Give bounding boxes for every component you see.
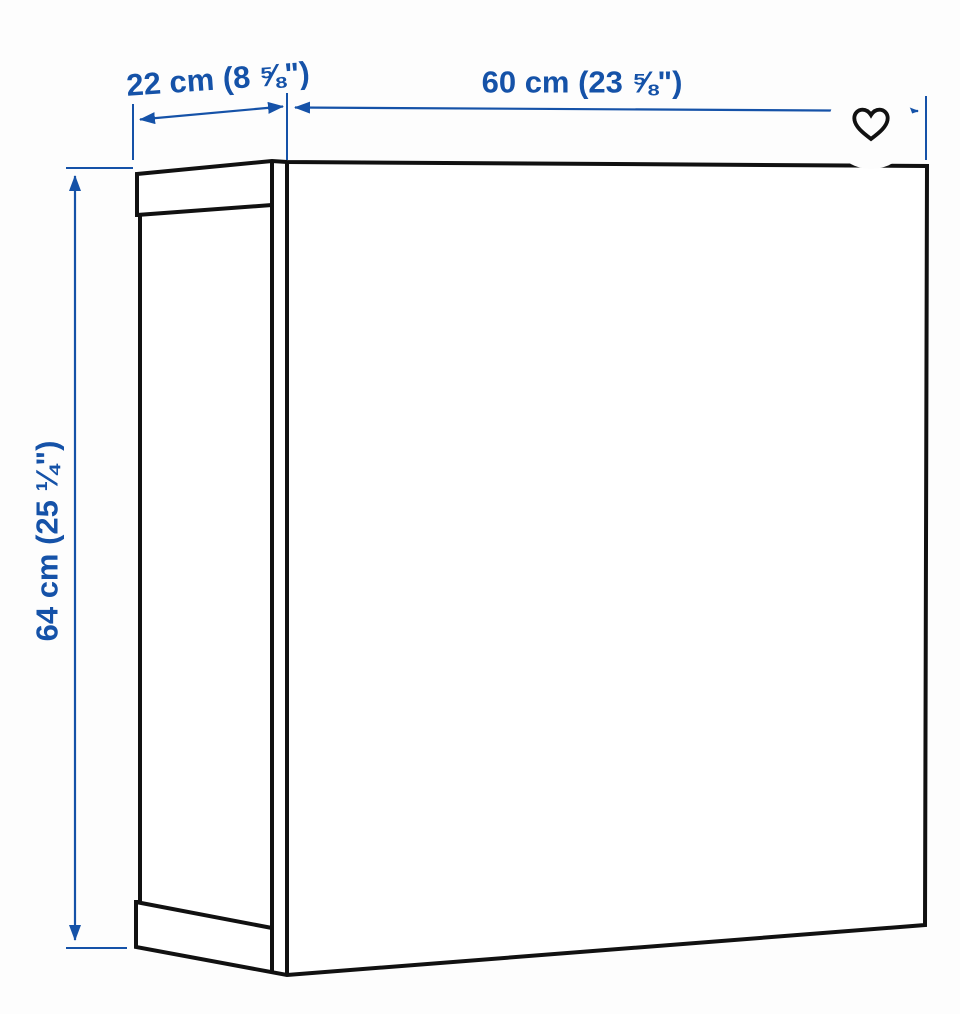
height-dimension-label: 64 cm (25 ¼") [32, 441, 63, 642]
product-dimension-image: 60 cm (23 ⅝") 22 cm (8 ⅝") 64 cm (25 ¼") [0, 0, 960, 1014]
cabinet-silhouette [136, 161, 927, 975]
heart-icon [848, 104, 894, 148]
width-dimension-label: 60 cm (23 ⅝") [482, 67, 683, 98]
depth-dimension-line [140, 107, 283, 120]
favorite-button[interactable] [828, 83, 914, 169]
width-dimension-line [295, 108, 918, 112]
cabinet-dimension-diagram [0, 0, 960, 1014]
cabinet-outline [136, 161, 927, 975]
